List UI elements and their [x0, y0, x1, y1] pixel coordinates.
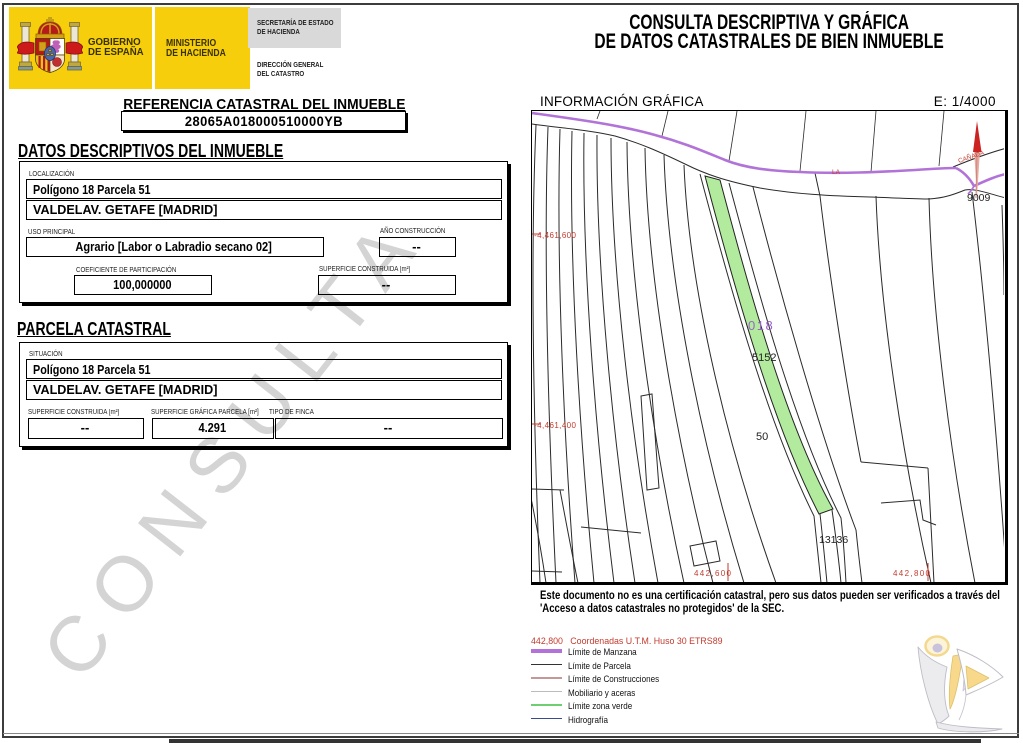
svg-text:50: 50	[756, 431, 768, 443]
svg-text:-4,461,400: -4,461,400	[534, 421, 577, 430]
svg-text:13136: 13136	[819, 534, 848, 546]
svg-text:442,800: 442,800	[893, 569, 931, 578]
svg-text:9009: 9009	[967, 192, 991, 204]
svg-text:LA: LA	[832, 169, 841, 176]
svg-text:442,600: 442,600	[694, 569, 732, 578]
svg-text:018: 018	[748, 318, 774, 333]
svg-text:5152: 5152	[752, 352, 776, 364]
svg-text:-4,461,600: -4,461,600	[534, 231, 577, 240]
svg-text:CAÑADA: CAÑADA	[957, 147, 986, 165]
